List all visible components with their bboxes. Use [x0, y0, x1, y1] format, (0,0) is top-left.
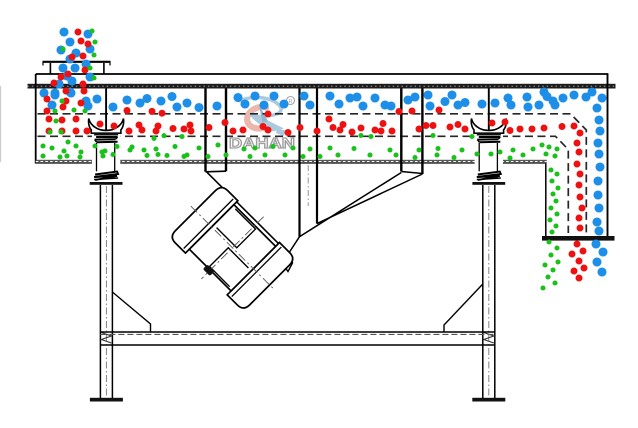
svg-text:R: R	[289, 99, 293, 105]
svg-text:DAHAN: DAHAN	[229, 136, 295, 152]
